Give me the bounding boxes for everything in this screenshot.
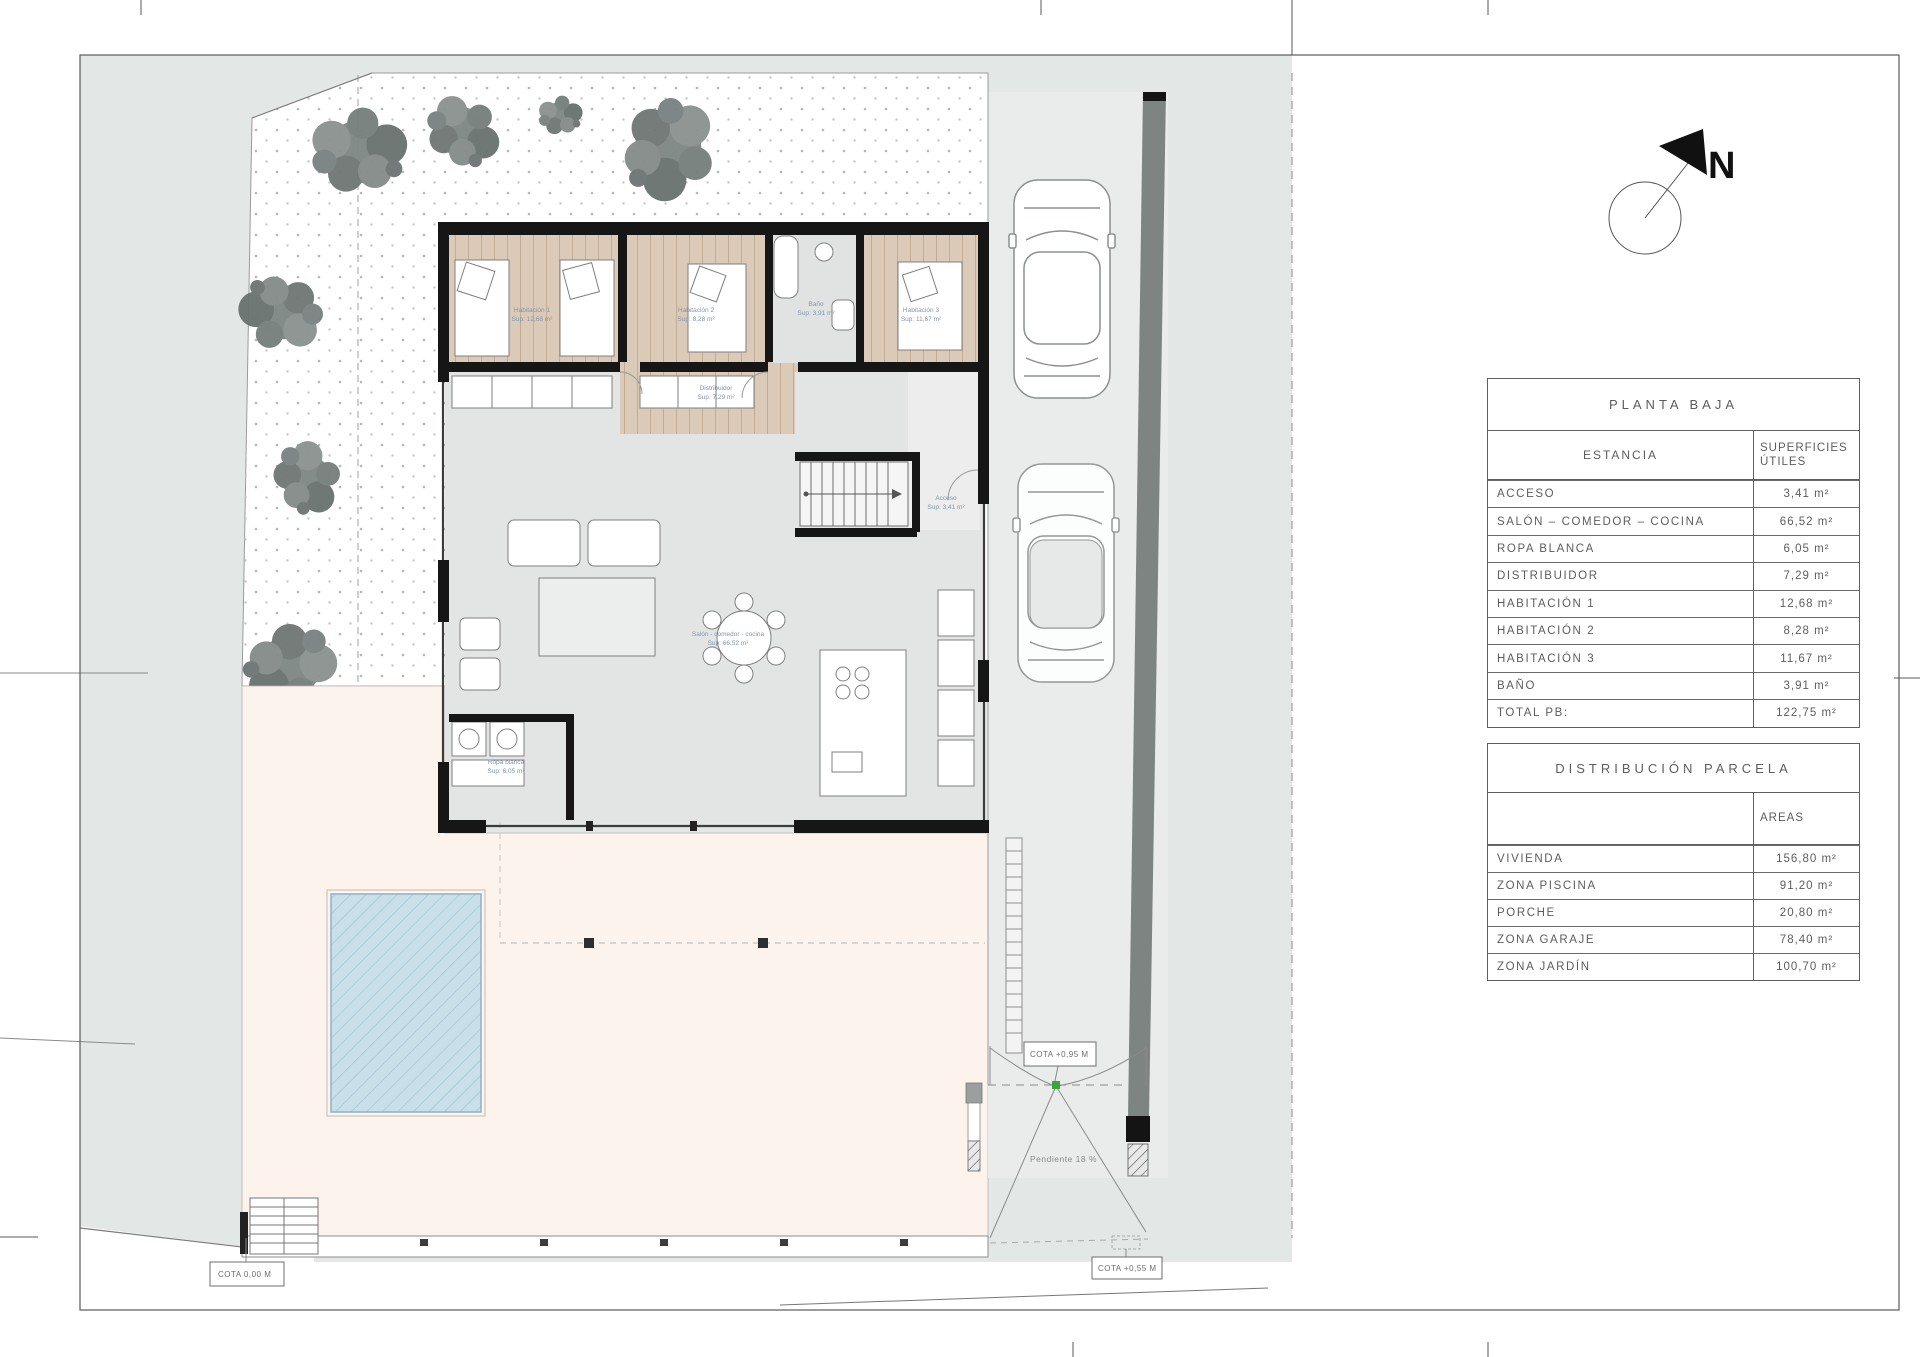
row-name: DISTRIBUIDOR <box>1488 563 1753 589</box>
cota-gate-label: COTA +0,95 M <box>1030 1050 1089 1059</box>
row-area: 6,05 m² <box>1753 536 1859 562</box>
room-label: Salón - comedor - cocina <box>692 631 765 638</box>
row-name: ACCESO <box>1488 481 1753 507</box>
row-area: 3,91 m² <box>1753 673 1859 699</box>
col-estancia: ESTANCIA <box>1488 431 1753 479</box>
room-sup: Sup: 6,05 m² <box>487 768 525 775</box>
distribucion-parcela-table: DISTRIBUCIÓN PARCELA AREAS VIVIENDA156,8… <box>1487 743 1860 981</box>
room-sup: Sup: 66,52 m² <box>708 640 750 647</box>
staircase <box>800 462 908 526</box>
table-header: ESTANCIA SUPERFICIES ÚTILES <box>1488 431 1859 480</box>
row-area: 7,29 m² <box>1753 563 1859 589</box>
room-sup: Sup: 3,91 m² <box>797 310 835 317</box>
row-name: SALÓN – COMEDOR – COCINA <box>1488 508 1753 534</box>
row-area: 12,68 m² <box>1753 591 1859 617</box>
table-row: HABITACIÓN 112,68 m² <box>1488 590 1859 617</box>
car-icon <box>1009 180 1115 398</box>
room-sup: Sup: 7,29 m² <box>697 394 735 401</box>
house: Habitación 1 Sup: 12,68 m² Habitación 2 … <box>438 222 989 833</box>
gate-marker <box>1052 1081 1060 1089</box>
table-row: BAÑO3,91 m² <box>1488 672 1859 699</box>
table-row: HABITACIÓN 28,28 m² <box>1488 617 1859 644</box>
drawing-sheet: Habitación 1 Sup: 12,68 m² Habitación 2 … <box>0 0 1920 1357</box>
col-superficies-line2: ÚTILES <box>1760 455 1859 469</box>
room-sup: Sup: 11,67 m² <box>901 316 942 323</box>
driveway-side-steps <box>1006 838 1022 1053</box>
north-arrow-icon: N <box>1609 129 1735 254</box>
slope-label: Pendiente 18 % <box>1030 1154 1097 1164</box>
row-area: 8,28 m² <box>1753 618 1859 644</box>
row-area: 3,41 m² <box>1753 481 1859 507</box>
table-row: PORCHE20,80 m² <box>1488 899 1859 926</box>
table-row: ROPA BLANCA6,05 m² <box>1488 535 1859 562</box>
terrace-low-wall <box>242 1236 988 1257</box>
room-label: Acceso <box>935 495 957 502</box>
porch-column <box>758 938 768 948</box>
row-name: HABITACIÓN 2 <box>1488 618 1753 644</box>
col-blank <box>1488 793 1753 844</box>
row-area: 66,52 m² <box>1753 508 1859 534</box>
row-area: 156,80 m² <box>1753 846 1859 872</box>
row-name: ROPA BLANCA <box>1488 536 1753 562</box>
row-name: VIVIENDA <box>1488 846 1753 872</box>
row-area: 78,40 m² <box>1753 927 1859 953</box>
table-row-total: TOTAL PB:122,75 m² <box>1488 699 1859 726</box>
porch-column <box>584 938 594 948</box>
table-header: AREAS <box>1488 793 1859 845</box>
row-name: ZONA GARAJE <box>1488 927 1753 953</box>
row-area: 20,80 m² <box>1753 900 1859 926</box>
room-label: Baño <box>808 301 824 308</box>
table-row: ZONA GARAJE78,40 m² <box>1488 926 1859 953</box>
pool <box>327 890 485 1116</box>
cota-access-label: COTA 0,00 M <box>218 1270 271 1279</box>
row-name: TOTAL PB: <box>1488 700 1753 726</box>
room-label: Habitación 2 <box>678 307 715 314</box>
garden-steps <box>250 1198 318 1254</box>
room-label: Habitación 3 <box>903 307 940 314</box>
table-row: DISTRIBUIDOR7,29 m² <box>1488 562 1859 589</box>
row-name: ZONA JARDÍN <box>1488 954 1753 980</box>
table-row: HABITACIÓN 311,67 m² <box>1488 644 1859 671</box>
room-sup: Sup: 3,41 m² <box>927 504 965 511</box>
row-name: HABITACIÓN 1 <box>1488 591 1753 617</box>
col-superficies-line1: SUPERFICIES <box>1760 441 1859 455</box>
row-area: 91,20 m² <box>1753 873 1859 899</box>
room-label: Ropa blanca <box>488 759 525 766</box>
table-row: SALÓN – COMEDOR – COCINA66,52 m² <box>1488 507 1859 534</box>
table-row: ACCESO3,41 m² <box>1488 480 1859 507</box>
table-row: ZONA JARDÍN100,70 m² <box>1488 953 1859 980</box>
row-area: 100,70 m² <box>1753 954 1859 980</box>
col-superficies: SUPERFICIES ÚTILES <box>1753 431 1859 479</box>
north-label: N <box>1708 145 1735 187</box>
col-areas: AREAS <box>1753 793 1859 844</box>
room-label: Distribuidor <box>700 385 734 392</box>
table-row: VIVIENDA156,80 m² <box>1488 845 1859 872</box>
room-sup: Sup: 12,68 m² <box>512 316 554 323</box>
col-areas-label: AREAS <box>1760 811 1859 825</box>
row-name: PORCHE <box>1488 900 1753 926</box>
room-label: Habitación 1 <box>514 307 551 314</box>
table-title: DISTRIBUCIÓN PARCELA <box>1488 744 1859 793</box>
row-area: 11,67 m² <box>1753 645 1859 671</box>
table-title: PLANTA BAJA <box>1488 379 1859 431</box>
row-area: 122,75 m² <box>1753 700 1859 726</box>
cota-street-label: COTA +0,55 M <box>1098 1264 1157 1273</box>
table-row: ZONA PISCINA91,20 m² <box>1488 872 1859 899</box>
row-name: HABITACIÓN 3 <box>1488 645 1753 671</box>
planta-baja-table: PLANTA BAJA ESTANCIA SUPERFICIES ÚTILES … <box>1487 378 1860 728</box>
room-sup: Sup: 8,28 m² <box>677 316 715 323</box>
row-name: ZONA PISCINA <box>1488 873 1753 899</box>
row-name: BAÑO <box>1488 673 1753 699</box>
